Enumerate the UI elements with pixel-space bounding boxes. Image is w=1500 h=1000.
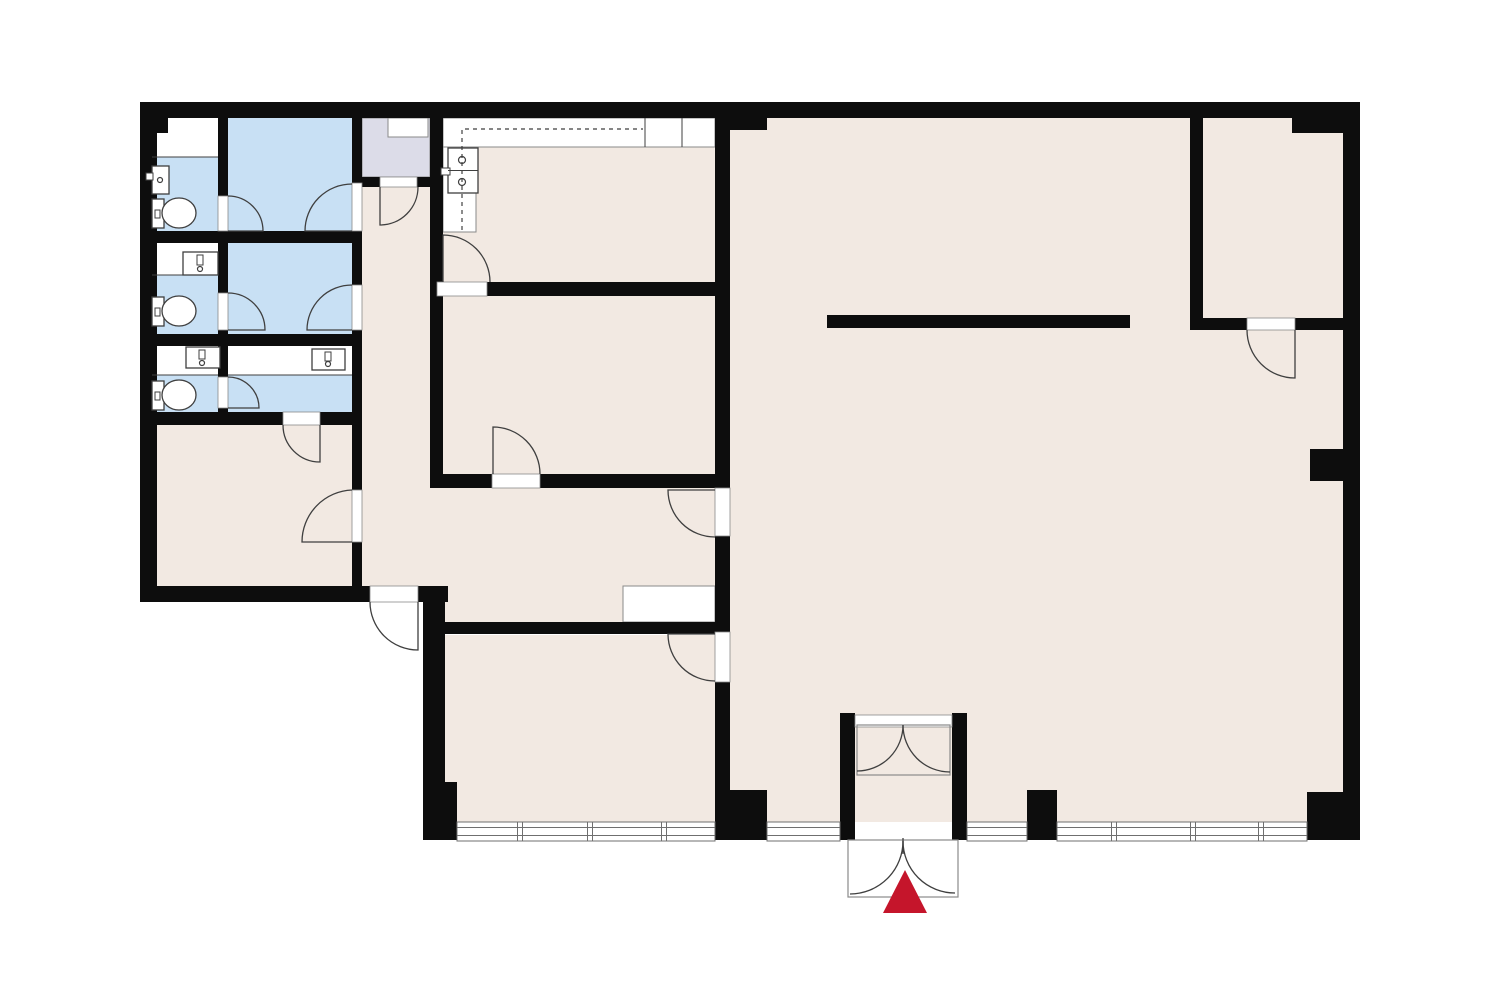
wall-bath-block-bottom-wall <box>140 412 362 425</box>
window-strip <box>1057 822 1307 841</box>
wall-bath-row-wall-1 <box>140 231 362 243</box>
wall-middle-room-bottom-wall <box>430 474 730 488</box>
toilet-bowl-icon <box>162 380 196 410</box>
door-frame-corridor-top-gap <box>380 177 417 187</box>
wall-right-wall <box>1343 102 1360 840</box>
room-floor-big-room <box>730 118 1343 822</box>
wall-middle-room-left-wall <box>430 282 443 487</box>
door-frame-hall-door-gap <box>715 488 730 536</box>
door-frame-lower-left-room-gap <box>352 490 362 542</box>
toilet-flush-icon <box>155 308 160 316</box>
room-floor-bottom-middle-room <box>445 635 715 822</box>
wall-window-pier <box>1027 790 1057 840</box>
wall-vestibule-right-post <box>952 713 967 840</box>
door-frame-middle-room-door-gap <box>492 474 540 488</box>
door-swing-corridor-exit-door <box>370 602 418 650</box>
toilet-flush-icon <box>155 210 160 218</box>
window-strip <box>767 822 840 841</box>
wall-vestibule-left-post <box>840 713 855 840</box>
wet-room-washroom-a <box>228 118 352 231</box>
kitchen-counter-top <box>443 118 715 147</box>
wall-bottom-left-wall-a <box>140 586 370 602</box>
wall-freestanding-wall <box>827 315 1130 328</box>
door-frame-upper-right-door-gap <box>1247 318 1295 330</box>
wall-hall-bottom-wall <box>423 622 730 634</box>
toilet-bowl-icon <box>162 198 196 228</box>
window-strip <box>967 822 1027 841</box>
door-frame-washroom-b-left-gap <box>218 293 228 330</box>
door-frame-washroom-b-right-gap <box>352 285 362 330</box>
door-frame-washroom-c-bottom-gap <box>283 412 320 425</box>
sink-icon-sink-1 <box>152 166 169 194</box>
toilet-bowl-icon <box>162 296 196 326</box>
floor-plan-drawing <box>0 0 1500 1000</box>
wall-bottom-room-left-pier <box>430 782 457 840</box>
wall-bottom-right-block <box>1307 792 1360 840</box>
wall-main-wall-bottom-pier <box>715 790 767 840</box>
room-floor-lower-left-room <box>152 425 352 586</box>
window-strip <box>457 822 715 841</box>
wall-right-notch-pier <box>1310 449 1343 481</box>
wall-top-left-pier <box>140 102 168 133</box>
door-frame-bottom-room-door-gap <box>715 632 730 682</box>
toilet-flush-icon <box>155 392 160 400</box>
wall-bath-row-wall-2 <box>140 334 362 346</box>
hall-counter <box>623 586 715 622</box>
closet-shelf <box>388 118 428 137</box>
wall-upper-right-stub <box>1292 118 1343 133</box>
door-frame-washroom-a-right-gap <box>352 183 362 231</box>
wall-upper-right-room-left-wall <box>1190 118 1203 330</box>
faucet-icon <box>199 350 205 359</box>
faucet-icon <box>325 352 331 361</box>
wall-top-pier <box>715 102 767 130</box>
faucet-icon <box>146 173 153 180</box>
room-floor-middle-room <box>443 296 715 474</box>
door-frame-washroom-a-left-gap <box>218 196 228 231</box>
wall-main-vertical-wall <box>715 102 730 840</box>
wet-room-washroom-c <box>228 375 352 412</box>
floor-plan-page <box>0 0 1500 1000</box>
door-frame-washroom-c-left-gap <box>218 377 228 408</box>
faucet-icon <box>441 168 450 175</box>
faucet-icon <box>197 255 203 265</box>
door-frame-corridor-exit-gap <box>370 586 418 602</box>
wall-kitchen-left-wall <box>430 102 443 296</box>
room-floor-corridor <box>362 187 430 586</box>
door-frame-kitchen-door-gap <box>437 282 487 296</box>
